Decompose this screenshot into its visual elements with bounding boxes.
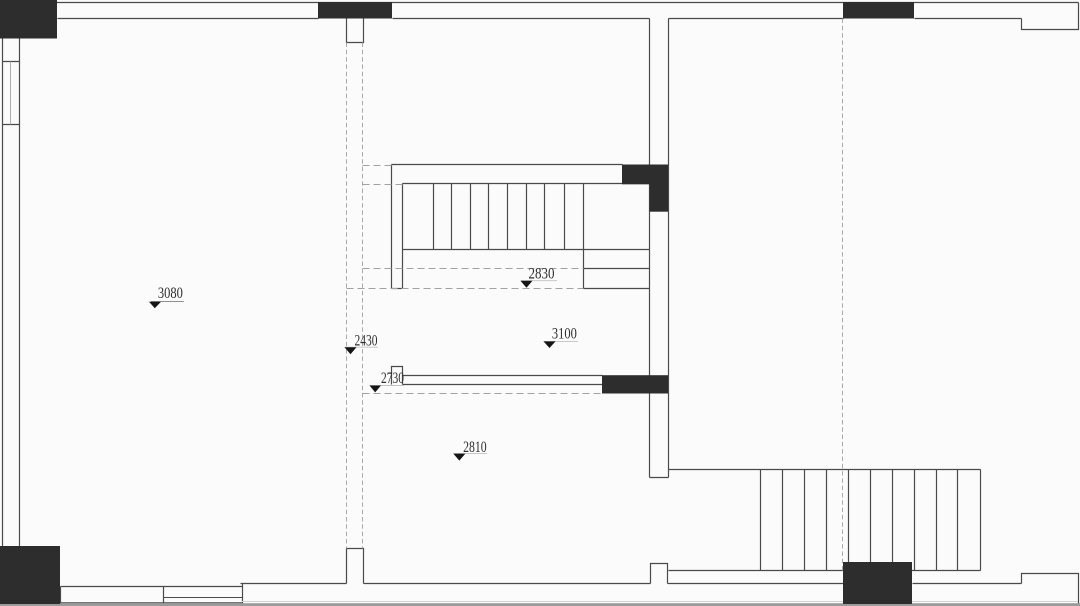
svg-text:3100: 3100 bbox=[552, 326, 577, 343]
svg-text:2430: 2430 bbox=[355, 332, 378, 349]
svg-text:2810: 2810 bbox=[463, 439, 487, 456]
svg-text:2830: 2830 bbox=[529, 266, 555, 283]
svg-text:2730: 2730 bbox=[381, 370, 404, 387]
svg-text:3080: 3080 bbox=[158, 285, 183, 302]
